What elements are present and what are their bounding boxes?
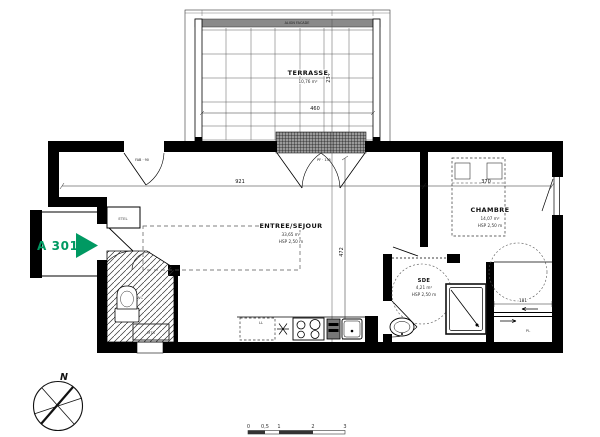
washer-outline xyxy=(240,318,275,340)
chambre-label: CHAMBRE xyxy=(471,206,510,214)
wall-top-mid xyxy=(164,141,277,152)
wc-label: WC xyxy=(137,295,144,300)
wall-sde-stub xyxy=(447,254,460,263)
toilet xyxy=(115,286,139,322)
corridor-door-leaf xyxy=(393,247,418,256)
sde-hsp: HSP 2,50 m xyxy=(412,292,436,297)
sejour-height-dim: 472 xyxy=(339,247,345,257)
scale-tick-0: 0 xyxy=(247,424,250,430)
terrace-area: 10,76 m² xyxy=(298,79,317,84)
window-casement-line xyxy=(542,179,553,211)
floorplan-page: ALIGN FACADE 460 234 TERRASSE 10,76 m² xyxy=(0,0,600,437)
chambre-area: 14,07 m² xyxy=(480,216,499,221)
etel-label: ETEL xyxy=(118,216,128,221)
door-fab-label: FAB · 90 xyxy=(135,158,149,162)
wall-sde-left-b xyxy=(383,334,392,342)
entry-door-leaf xyxy=(107,226,133,251)
wall-sde-left-a xyxy=(383,254,392,301)
compass-north-label: N xyxy=(60,372,68,383)
chambre-window xyxy=(542,177,563,215)
wall-bottom xyxy=(97,342,563,353)
shower xyxy=(446,284,486,334)
chambre-room: CHAMBRE 14,07 m² HSP 2,50 m xyxy=(452,158,509,236)
terrace-deck-grid xyxy=(202,28,373,140)
sde-area: 4,21 m² xyxy=(416,285,433,290)
scale-tick-3: 3 xyxy=(343,424,346,430)
terrace-left-wall xyxy=(195,19,202,147)
corridor-turning-circle xyxy=(489,243,547,301)
scale-tick-05: 0,5 xyxy=(261,424,269,430)
pl-width-dim: 181 xyxy=(519,298,527,303)
terrace-width-dim: 460 xyxy=(310,106,320,112)
water-point-icon xyxy=(277,324,289,335)
wall-top-right xyxy=(365,141,563,152)
washbasin xyxy=(390,318,414,336)
wall-top-left xyxy=(48,141,124,152)
terrace-wall-note: ALIGN FACADE xyxy=(285,21,310,25)
unit-callout: A 301 xyxy=(37,233,98,258)
kitchen: LL xyxy=(237,317,365,340)
door-pf-label: PF · 135 xyxy=(317,158,331,162)
sejour-width-dim: 921 xyxy=(235,179,245,185)
washer-label: LL xyxy=(259,321,263,325)
scale-bar-segments xyxy=(248,431,345,435)
scale-tick-2: 2 xyxy=(311,424,314,430)
cooktop xyxy=(293,318,324,340)
wall-left-step xyxy=(48,197,107,207)
scale-tick-1: 1 xyxy=(277,424,280,430)
terrace-outer-line xyxy=(185,10,390,147)
terrace: ALIGN FACADE 460 234 TERRASSE 10,76 m² xyxy=(185,10,390,153)
sink-drain-dot xyxy=(351,330,354,333)
chambre-width-dim: 370 xyxy=(481,179,491,185)
terrace-dim-ticks xyxy=(185,10,390,16)
scale-bar: 0 0,5 1 2 3 xyxy=(247,424,347,434)
pillow-right xyxy=(487,163,502,179)
pl-label: PL xyxy=(526,328,531,333)
slide-arrow-right xyxy=(500,319,516,322)
wall-kitchen-stub xyxy=(365,316,378,342)
etel-closet: ETEL xyxy=(107,207,140,228)
oven-unit xyxy=(327,319,340,339)
pl-sliding-doors xyxy=(494,313,552,317)
sejour-area: 33,65 m² xyxy=(281,232,300,237)
pillow-left xyxy=(455,163,470,179)
wall-right xyxy=(552,141,563,353)
sde-label: SDE xyxy=(418,278,431,284)
sink-unit xyxy=(342,319,362,339)
sde-room: SDE 4,21 m² HSP 2,50 m xyxy=(390,258,486,336)
wall-sde-right xyxy=(486,262,494,342)
unit-label: A 301 xyxy=(37,239,79,253)
wall-entry-jamb-top xyxy=(97,207,107,224)
wall-left-lower xyxy=(97,260,107,342)
sejour-label: ENTREE/SEJOUR xyxy=(259,222,322,230)
compass: N xyxy=(34,372,83,431)
wall-wc-right xyxy=(174,267,178,342)
sejour: ENTREE/SEJOUR 33,65 m² HSP 2,50 m xyxy=(259,222,322,244)
shower-drain-dot xyxy=(476,324,479,327)
sejour-hsp: HSP 2,50 m xyxy=(279,239,303,244)
wall-chambre-left xyxy=(420,152,428,247)
terrace-label: TERRASSE xyxy=(288,69,329,77)
wc-room: WC xyxy=(107,251,174,342)
terrace-threshold-grate xyxy=(276,132,366,153)
chambre-hsp: HSP 2,50 m xyxy=(478,223,502,228)
slide-arrow-left xyxy=(522,307,538,310)
entry-arrow-icon xyxy=(76,233,98,258)
corridor-pl: 181 PL xyxy=(489,243,552,333)
floorplan-svg: ALIGN FACADE 460 234 TERRASSE 10,76 m² xyxy=(0,0,600,437)
terrace-right-wall xyxy=(373,19,380,147)
horizontal-dimline xyxy=(60,183,554,189)
